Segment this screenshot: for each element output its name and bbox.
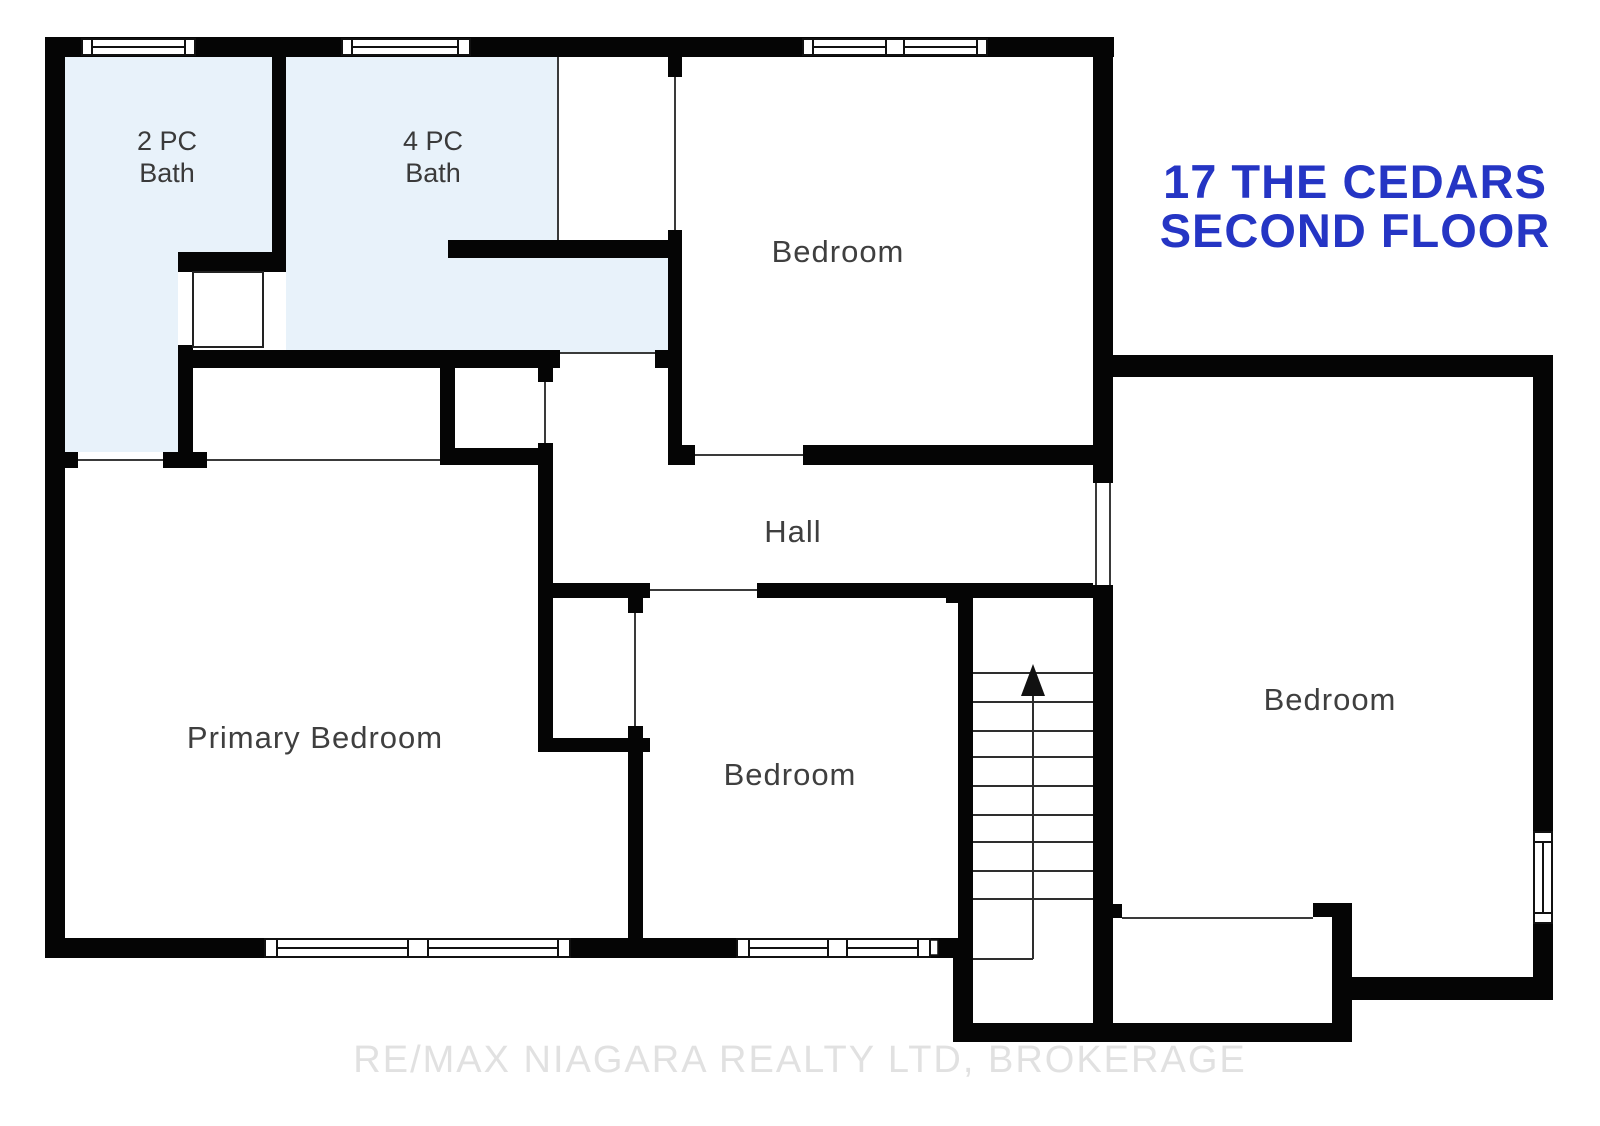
wall-bath-bottom-long: [178, 350, 560, 368]
wall-bedroomtop-left-b: [668, 230, 682, 445]
wall-right-section-top: [1113, 355, 1553, 377]
wall-closet-top: [178, 252, 286, 272]
room-label-bath-4pc-line2: Bath: [405, 158, 461, 188]
window-icon: [265, 939, 570, 957]
wall-midbedroom-top: [757, 583, 1093, 598]
room-label-bath-2pc-line1: 2 PC: [137, 126, 197, 156]
wall-bedroomtop-bottom-a: [668, 445, 695, 465]
wall-closet-foot: [163, 452, 207, 468]
window-icon: [342, 39, 470, 55]
wall-stair-left-lower: [953, 938, 973, 1042]
brokerage-watermark: RE/MAX NIAGARA REALTY LTD, BROKERAGE: [353, 1039, 1246, 1081]
room-label-bedroom-top: Bedroom: [772, 234, 905, 269]
title-line1: 17 THE CEDARS: [1163, 155, 1547, 208]
room-label-hall: Hall: [764, 514, 821, 549]
bath-2pc-area-lower: [65, 272, 178, 452]
wall-midbedroom-left: [628, 726, 643, 958]
bath-4pc-area-lower: [286, 242, 668, 353]
room-label-primary-bedroom: Primary Bedroom: [187, 720, 443, 755]
wall-primary-left-nub: [63, 452, 78, 468]
room-label-bedroom-middle: Bedroom: [724, 757, 857, 792]
wall-hallnook-bottom: [440, 448, 553, 465]
wall-smallroom-left-stub: [1107, 904, 1122, 918]
wall-smallroom-right-stub: [1313, 903, 1345, 917]
room-label-bedroom-right: Bedroom: [1264, 682, 1397, 717]
wall-bedroomtop-left-a: [668, 57, 682, 77]
floor-plan-canvas: 2 PC Bath 4 PC Bath Bedroom Hall Primary…: [0, 0, 1600, 1126]
window-icon: [737, 939, 930, 957]
wall-4pc-closet-stub: [448, 240, 668, 258]
wall-left-outer: [45, 37, 65, 958]
window-icon: [82, 39, 195, 55]
floor-plan-title: 17 THE CEDARS SECOND FLOOR: [1160, 155, 1551, 257]
wall-bath-bottom-stub: [655, 350, 682, 368]
wall-hall-left-upper: [538, 350, 553, 382]
wall-closet-left: [178, 345, 193, 457]
stairs: [973, 664, 1093, 959]
wall-right-bedroom-bottom: [1345, 977, 1553, 1000]
stair-direction-arrow-icon: [1021, 664, 1045, 696]
bath-closet-box: [193, 272, 263, 347]
wall-bedroomtop-bottom-b: [803, 445, 1093, 465]
window-icon: [1534, 832, 1552, 923]
wall-bath-divider: [272, 57, 286, 272]
room-label-bath-4pc-line1: 4 PC: [403, 126, 463, 156]
wall-spine-upper: [1093, 37, 1113, 483]
room-label-bath-2pc-line2: Bath: [139, 158, 195, 188]
wall-hallcloset-stub-top: [628, 583, 643, 613]
wall-hall-left-lower: [538, 443, 553, 752]
window-icon: [803, 39, 987, 55]
wall-spine-lower: [1093, 585, 1113, 1042]
title-line2: SECOND FLOOR: [1160, 204, 1551, 257]
wall-step-vertical: [1332, 903, 1352, 1042]
